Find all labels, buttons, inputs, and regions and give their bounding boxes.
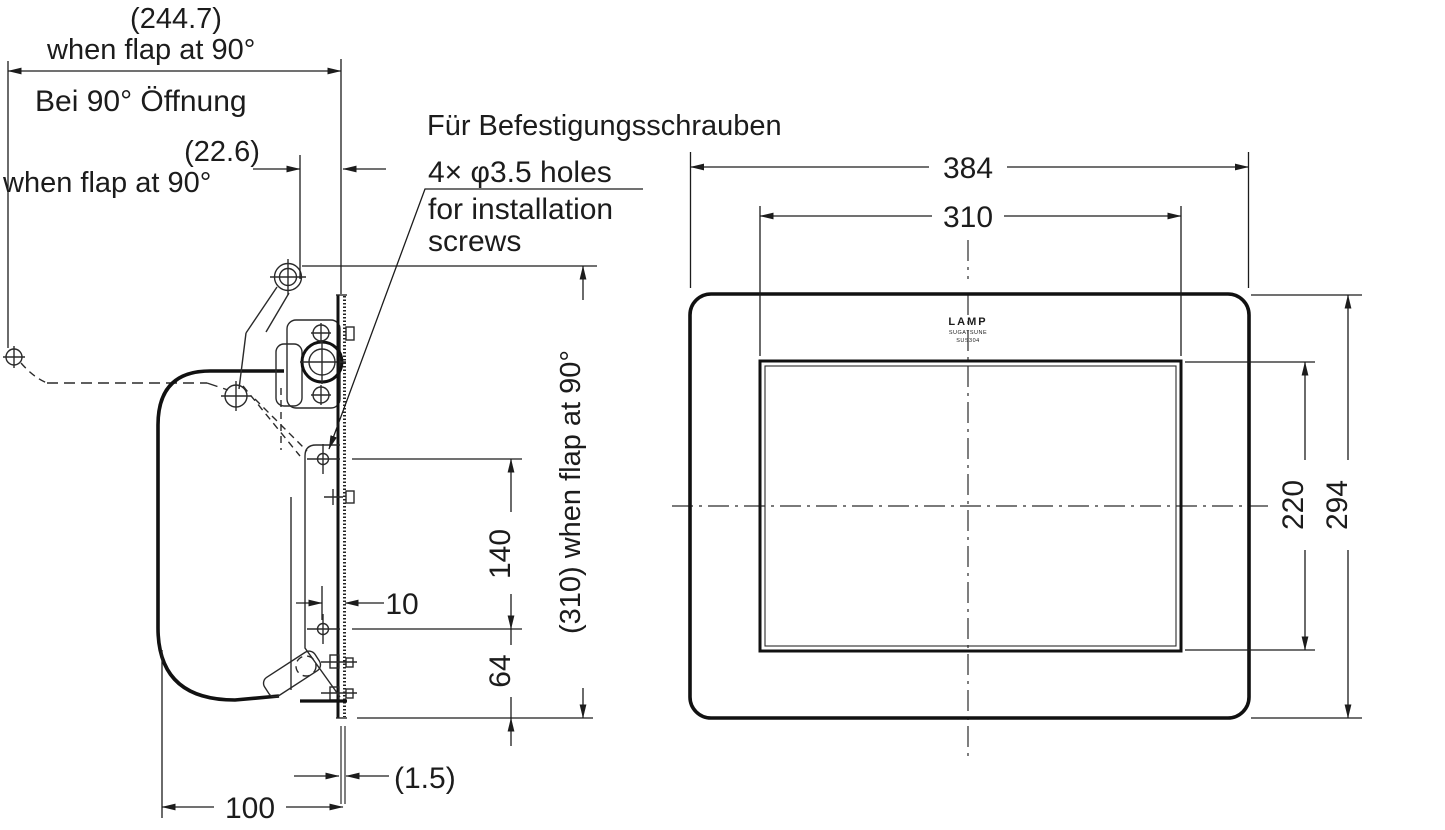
dim-label-220: 220 <box>1277 480 1310 530</box>
dim-label-384: 384 <box>943 152 993 185</box>
note-holes-1: 4× φ3.5 holes <box>428 156 612 189</box>
note-when-flap-2: when flap at 90° <box>2 167 211 199</box>
note-bei-90: Bei 90° Öffnung <box>35 85 247 118</box>
front-view-dimensions <box>691 152 1363 718</box>
dim-label-244-7: (244.7) <box>130 3 222 35</box>
dim-label-1-5: (1.5) <box>394 762 456 795</box>
hinge-mechanism <box>221 259 354 456</box>
dim-label-140: 140 <box>484 529 517 579</box>
dim-label-100: 100 <box>225 792 275 825</box>
flap-open-position-dashed <box>3 346 228 390</box>
flap-fitting-drawing: (244.7) when flap at 90° Bei 90° Öffnung… <box>0 0 1445 830</box>
note-fur-befestigungsschrauben: Für Befestigungsschrauben <box>427 110 782 142</box>
dim-label-294: 294 <box>1321 480 1354 530</box>
front-view-labels: 384 310 220 294 <box>929 151 1366 550</box>
dim-label-310: 310 <box>943 201 993 234</box>
logo-model-text: SUS304 <box>956 338 980 344</box>
lamp-logo: LAMP SUGATSUNE SUS304 <box>948 316 987 344</box>
dim-label-10: 10 <box>385 588 418 621</box>
logo-maker-text: SUGATSUNE <box>949 330 987 336</box>
dim-label-22-6: (22.6) <box>184 136 260 168</box>
note-when-flap-1: when flap at 90° <box>46 34 255 66</box>
side-view-labels: (244.7) when flap at 90° Bei 90° Öffnung… <box>2 3 782 825</box>
front-view: LAMP SUGATSUNE SUS304 384 <box>672 151 1366 762</box>
flap-door-outline <box>158 371 291 700</box>
logo-brand-text: LAMP <box>948 316 987 328</box>
technical-drawing-page: (244.7) when flap at 90° Bei 90° Öffnung… <box>0 0 1445 830</box>
dim-label-64: 64 <box>484 654 517 687</box>
dim-label-310-flap: (310) when flap at 90° <box>555 350 587 634</box>
note-holes-2: for installation <box>428 193 613 226</box>
side-view: (244.7) when flap at 90° Bei 90° Öffnung… <box>2 3 782 825</box>
note-holes-3: screws <box>428 225 521 258</box>
